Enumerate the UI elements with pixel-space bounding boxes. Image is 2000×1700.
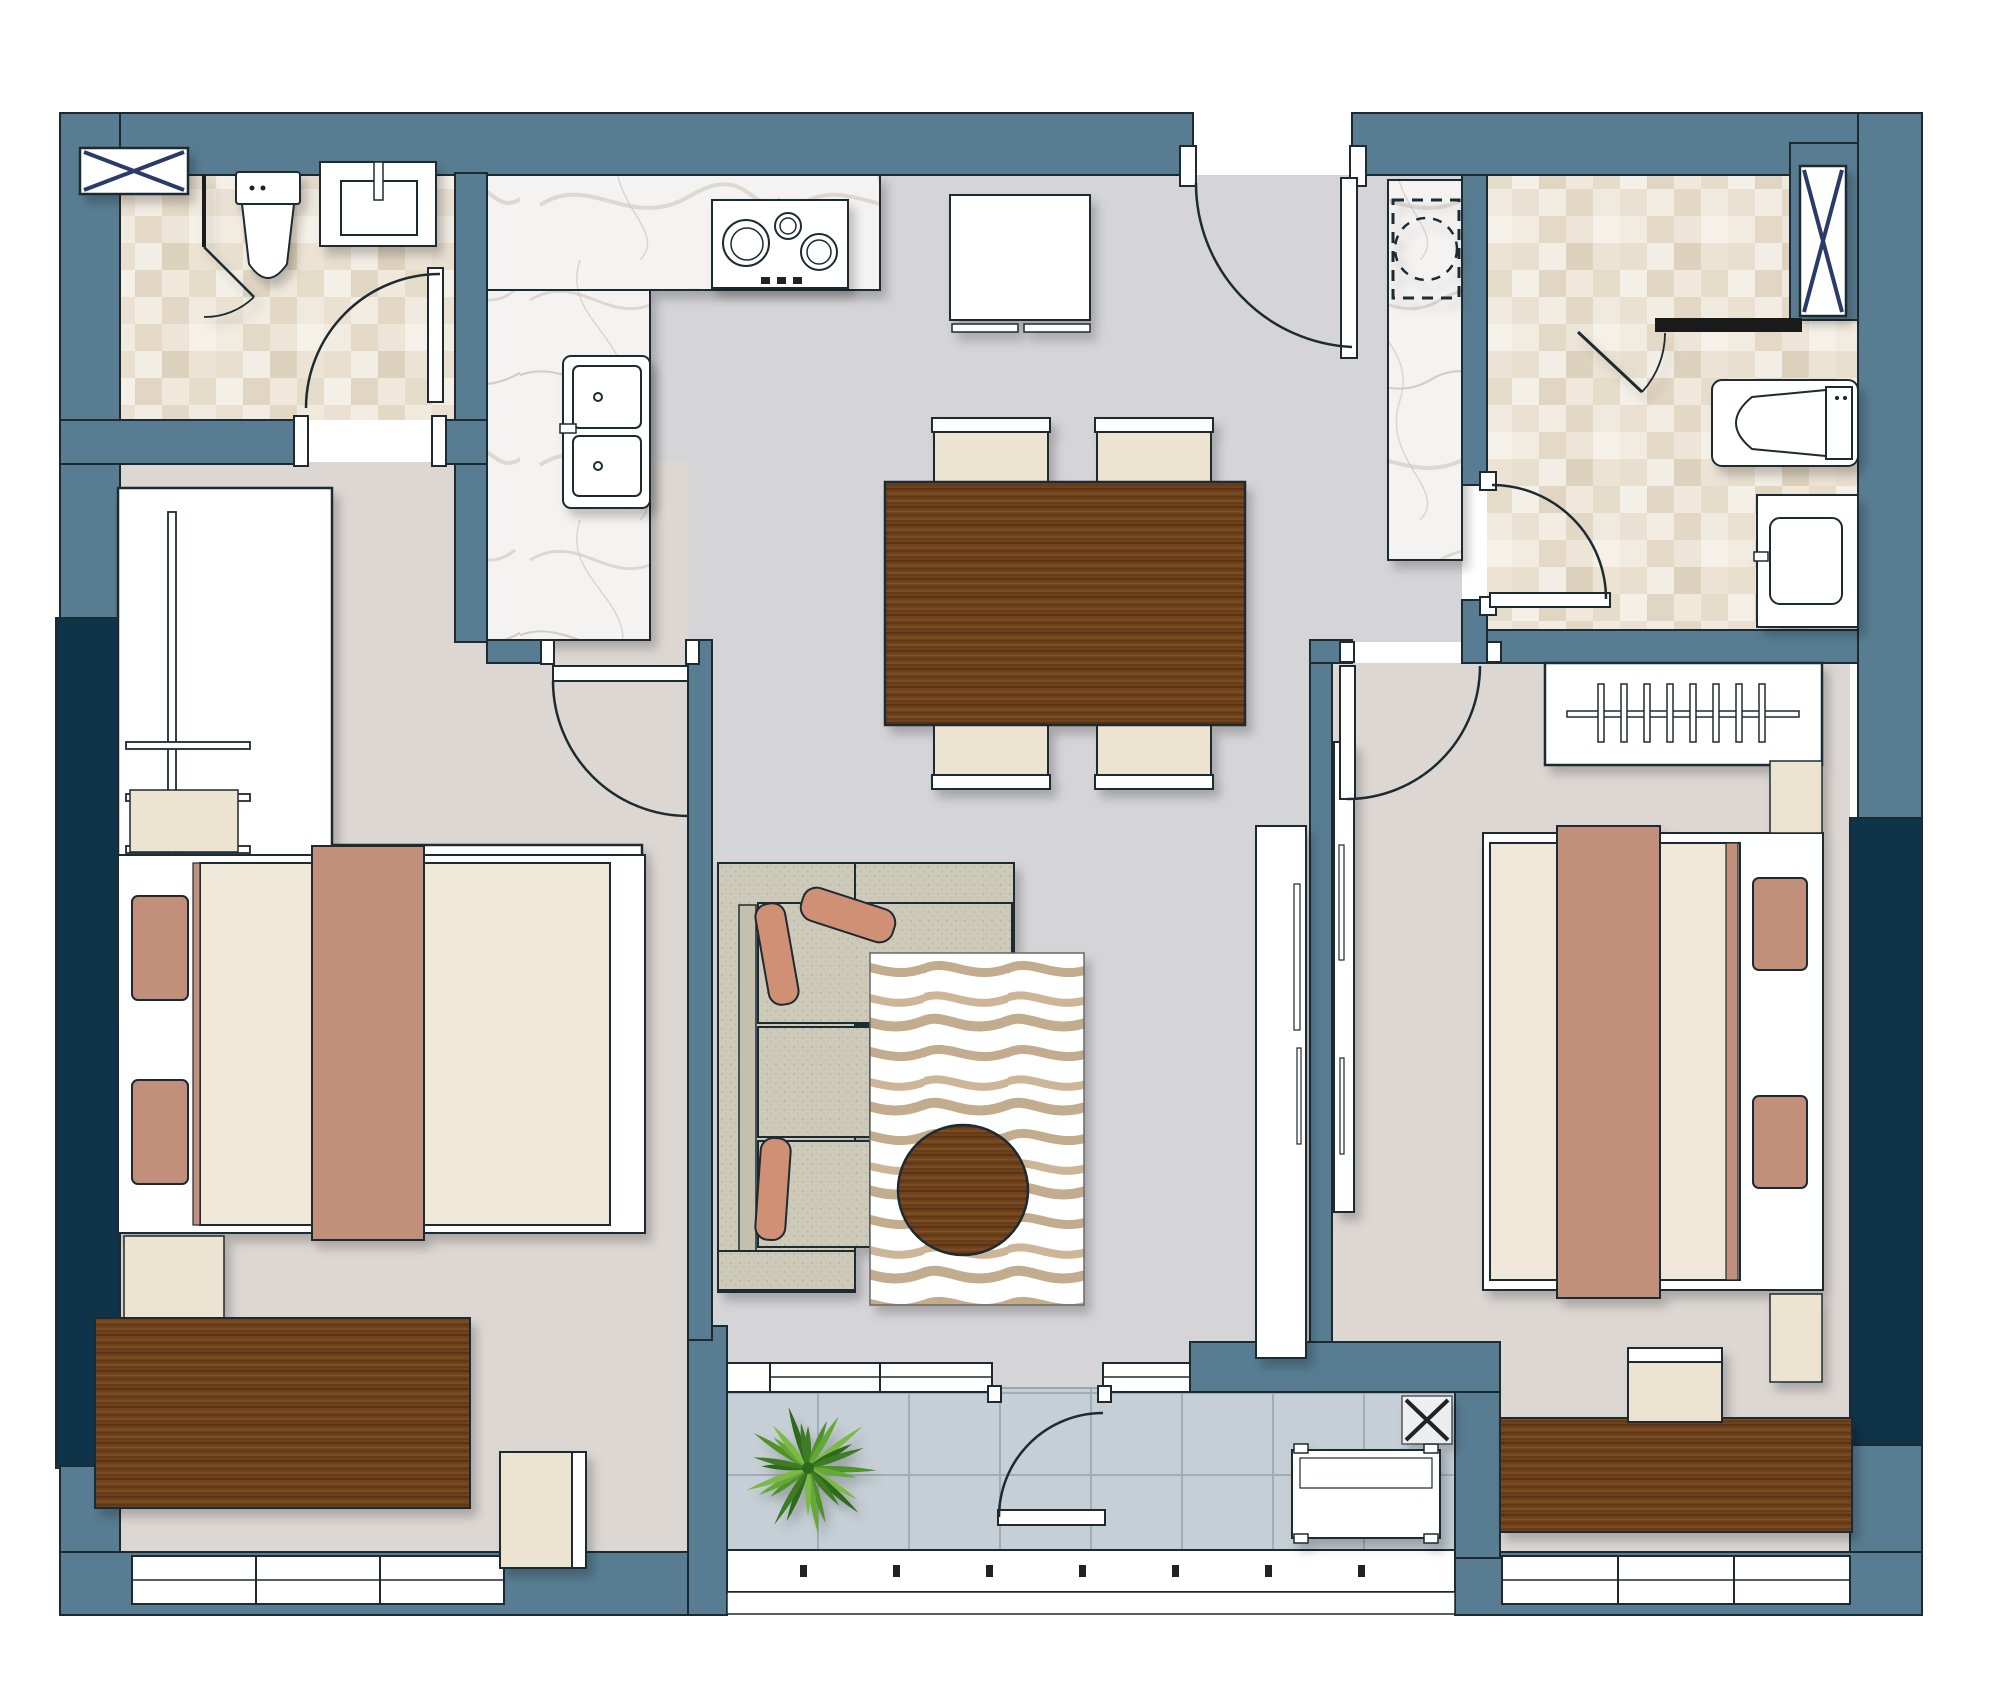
toilet-left-tank: [236, 172, 300, 204]
kitchen-sink-drain-2: [594, 462, 602, 470]
vanity-right-basin: [1770, 518, 1842, 604]
bed-right-runner: [1557, 826, 1660, 1298]
wardrobe-hanger-8: [1759, 684, 1765, 742]
cooktop-knob-2: [777, 277, 786, 284]
wardrobe-hanger-3: [1644, 684, 1650, 742]
bed-right-headboard-line: [1726, 843, 1738, 1280]
kitchen-sink-drain-1: [594, 393, 602, 401]
bed-right-pillow-1: [1753, 878, 1807, 970]
bedroom-left-door-jamb-2: [686, 640, 699, 664]
wall-balcony-bedroom-right: [1455, 1388, 1500, 1558]
balcony-drain-xbox: [1402, 1396, 1452, 1444]
chair-right-back: [1628, 1348, 1722, 1362]
railing-post-5: [1172, 1565, 1179, 1577]
nightstand-right-bottom: [1770, 1294, 1822, 1382]
laundry-counter: [1388, 180, 1462, 560]
chair-right-seat: [1628, 1362, 1722, 1422]
ac-foot-3: [1294, 1534, 1308, 1543]
bedroom-right-door-leaf: [1340, 666, 1355, 799]
sofa-back-strip: [739, 905, 756, 1252]
toilet-left-dot-2: [261, 186, 266, 191]
wall-bedroom-left-living: [688, 640, 712, 1340]
dining-chair-1-seat: [934, 432, 1048, 486]
floor-plan: [0, 0, 2000, 1700]
toilet-right-bowl: [1736, 390, 1826, 456]
vanity-left-faucet: [374, 162, 383, 200]
wall-bath-right-bottom: [1487, 630, 1858, 663]
bed-right-pillow-2: [1753, 1096, 1807, 1188]
bed-left-headboard-line: [193, 863, 200, 1225]
wardrobe-hanger-2: [1621, 684, 1627, 742]
bath-right-door-jamb-1: [1480, 472, 1496, 490]
dining-chair-2-back: [1095, 418, 1213, 432]
kitchen-sink-faucet: [560, 424, 576, 433]
railing-post-7: [1358, 1565, 1365, 1577]
balcony-plant-center: [802, 1462, 814, 1474]
closet-L-tick-1: [126, 742, 250, 749]
fridge-handle-2: [1024, 324, 1090, 332]
fridge: [950, 195, 1090, 320]
desk-right: [1500, 1418, 1852, 1532]
dining-chair-4-seat: [1097, 721, 1211, 775]
dining-table: [885, 482, 1245, 725]
shaft-xbox-right: [1800, 166, 1846, 316]
dining-chair-4-back: [1095, 775, 1213, 789]
dining-chair-1-back: [932, 418, 1050, 432]
bath-left-door-jamb-1: [294, 416, 308, 466]
wall-balcony-left: [688, 1326, 727, 1615]
kitchen-sink-basin-1: [573, 366, 641, 428]
sofa-seat-cushion-1: [758, 1027, 870, 1137]
wall-bath-right-stub: [1655, 318, 1802, 332]
wardrobe-hanger-5: [1690, 684, 1696, 742]
balcony-door-jamb-2: [1098, 1386, 1111, 1402]
floor-plan-canvas: [0, 0, 2000, 1700]
balcony-window-jamb: [727, 1363, 770, 1392]
ac-foot-4: [1424, 1534, 1438, 1543]
bedroom-left-door-jamb-1: [541, 640, 554, 664]
toilet-right-dot-1: [1835, 396, 1839, 400]
dining-chair-3-back: [932, 775, 1050, 789]
railing-post-4: [1079, 1565, 1086, 1577]
bath-left-door-leaf: [428, 268, 443, 402]
bedroom-right-door-jamb-2: [1487, 642, 1501, 662]
shaft-xbox-left: [80, 148, 188, 194]
wall-bath-left-bottom-a: [60, 420, 302, 464]
dining-chair-2-seat: [1097, 432, 1211, 486]
sofa-pillow-3: [754, 1137, 791, 1241]
wardrobe-hanger-7: [1736, 684, 1742, 742]
wall-top-left: [60, 113, 1193, 175]
wall-balcony-top-chunk: [1190, 1342, 1500, 1392]
bed-left-runner: [312, 846, 424, 1240]
cooktop-knob-3: [793, 277, 802, 284]
vanity-right-faucet: [1754, 552, 1768, 561]
balcony-door-jamb-1: [988, 1386, 1001, 1402]
coffee-table: [898, 1125, 1028, 1255]
wall-laundry-right-upper: [1462, 175, 1487, 485]
wall-right-accent: [1850, 818, 1922, 1445]
nightstand-left-bottom: [124, 1236, 224, 1328]
bedroom-left-door-leaf: [553, 666, 688, 681]
cabinet-living-handle-1: [1294, 884, 1300, 1030]
bath-left-stall-wall: [202, 175, 206, 247]
wardrobe-hanger-4: [1667, 684, 1673, 742]
balcony-railing: [727, 1550, 1455, 1592]
wall-right-upper: [1858, 113, 1922, 818]
balcony-railing-ledge: [727, 1592, 1455, 1614]
ac-foot-1: [1294, 1444, 1308, 1453]
slide-panel-handle-2: [1340, 1058, 1344, 1154]
fridge-handle-1: [952, 324, 1018, 332]
chair-left-back: [572, 1452, 586, 1568]
desk-left: [95, 1318, 470, 1508]
wall-bedroom-right-living: [1310, 640, 1332, 1342]
toilet-left-dot-1: [250, 186, 255, 191]
toilet-right-tank: [1826, 387, 1852, 459]
railing-post-6: [1265, 1565, 1272, 1577]
bath-left-door-jamb-2: [432, 416, 446, 466]
railing-post-2: [893, 1565, 900, 1577]
balcony-door-leaf: [998, 1510, 1105, 1525]
wardrobe-hanger-6: [1713, 684, 1719, 742]
wardrobe-hanger-1: [1598, 684, 1604, 742]
kitchen-sink-basin-2: [573, 436, 641, 496]
sofa-armrest: [718, 1251, 855, 1290]
ac-foot-2: [1424, 1444, 1438, 1453]
bed-left-pillow-2: [132, 1080, 188, 1184]
dining-chair-3-seat: [934, 721, 1048, 775]
entrance-door-jamb-left: [1180, 146, 1196, 186]
bath-right-door-leaf: [1490, 593, 1610, 607]
railing-post-1: [800, 1565, 807, 1577]
cooktop-knob-1: [761, 277, 770, 284]
bed-left-pillow-1: [132, 896, 188, 1000]
entrance-door-leaf: [1341, 178, 1357, 358]
cabinet-living-handle-2: [1297, 1048, 1301, 1144]
bedroom-right-door-jamb-1: [1340, 642, 1354, 662]
toilet-right-dot-2: [1843, 396, 1847, 400]
ac-unit: [1292, 1450, 1440, 1538]
wall-kitchen-bath: [455, 173, 487, 642]
nightstand-left-top: [130, 790, 238, 852]
slide-panel-handle-1: [1339, 845, 1344, 960]
nightstand-right-top: [1770, 761, 1822, 833]
railing-post-3: [986, 1565, 993, 1577]
